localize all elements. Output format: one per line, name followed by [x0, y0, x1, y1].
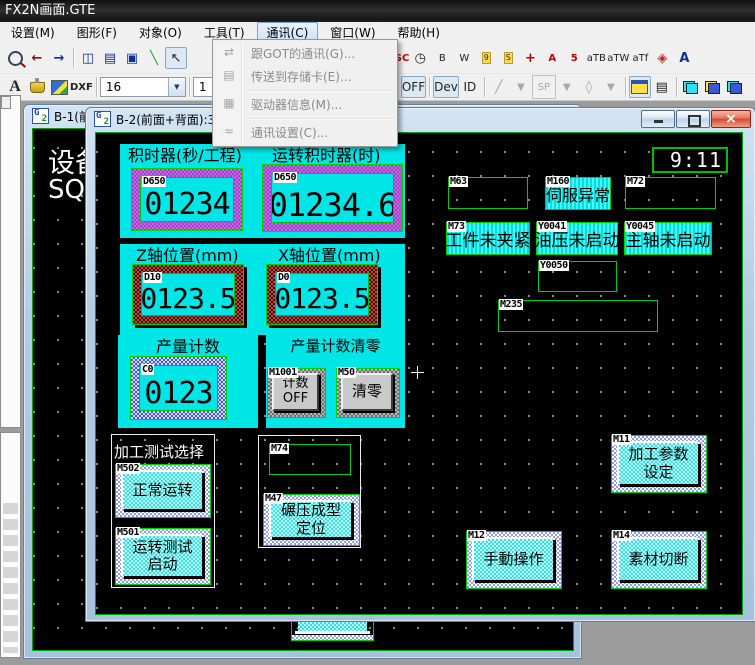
clock-display-icon[interactable]: ◷ [409, 47, 431, 69]
screen-copy-icon[interactable]: ◫ [77, 47, 99, 69]
chevron-down-icon[interactable]: ▼ [600, 76, 622, 98]
alarm-user-icon[interactable]: 9 [482, 52, 491, 64]
lamp-m63[interactable]: M63 [448, 177, 528, 209]
dxf-icon[interactable]: DXF [70, 76, 93, 98]
button-bevel [295, 631, 370, 634]
lamp-servo-alarm[interactable]: M160 伺服异常 [545, 177, 611, 210]
timer-title: 积时器(秒/工程) [128, 147, 242, 165]
screen-overlay-icon[interactable]: ▣ [121, 47, 143, 69]
button-frame [292, 635, 373, 640]
device-label: D650 [142, 176, 166, 187]
image-icon[interactable] [48, 76, 70, 98]
clock-display[interactable]: 9:11 [652, 147, 728, 173]
device-label: M235 [499, 299, 523, 310]
device-label: D10 [143, 272, 162, 283]
param-setting-button[interactable]: 加工参数 设定 M11 [611, 435, 707, 493]
font-size-combobox[interactable]: 16 ▼ [100, 77, 186, 97]
comm-setup-icon: ≈ [221, 124, 237, 138]
device-label: D650 [273, 172, 297, 183]
lamp-spindle-not-started[interactable]: Y0045 主轴未启动 [624, 222, 712, 255]
screen-thumb-icon [631, 80, 648, 94]
comment-a-icon[interactable]: A [541, 47, 563, 69]
manual-operation-button[interactable]: 手動操作 M12 [466, 531, 562, 589]
left-palette-panel[interactable] [0, 432, 21, 658]
prev-screen-icon[interactable]: ← [26, 47, 48, 69]
clock-value: 9:11 [670, 148, 722, 172]
pen-style-icon[interactable]: ╱ [488, 76, 510, 98]
menu-figure[interactable]: 图形(F) [67, 22, 127, 43]
brush-icon [30, 82, 45, 93]
z-axis-value: 0123.5 [141, 286, 235, 315]
menu-separator [245, 118, 394, 119]
b2-canvas[interactable]: 积时器(秒/工程) 运转积时器(时) 01234 D650 01234.6 [95, 132, 743, 615]
timer-panel[interactable]: 积时器(秒/工程) 运转积时器(时) 01234 D650 01234.6 [120, 144, 405, 238]
device-label: Y0045 [625, 221, 655, 232]
got-comm-icon: ⇄ [221, 45, 237, 59]
left-dock-panel[interactable] [0, 95, 21, 428]
layer-squares-icon [683, 81, 698, 94]
run-timer-display[interactable]: 01234.6 D650 [262, 164, 403, 232]
normal-run-button[interactable]: 正常运转 M502 [115, 464, 211, 518]
rolling-position-button[interactable]: 碾压成型 定位 M47 [263, 494, 360, 546]
device-label: D0 [277, 272, 290, 283]
button-label: 碾压成型 定位 [269, 500, 351, 537]
device-label: M74 [270, 443, 289, 454]
chevron-down-icon[interactable]: ▼ [510, 76, 532, 98]
window-b2[interactable]: B-2(前面+背面):3 积时器(秒/工程) 运转积时器(时) 01234 D6… [85, 107, 755, 622]
m74-group[interactable]: M74 碾压成型 定位 M47 [258, 435, 361, 548]
count-clear-panel[interactable]: 产量计数清零 计数 OFF M1001 清零 M50 [266, 335, 405, 428]
back-layer-icon[interactable] [702, 76, 724, 98]
x-axis-display[interactable]: 0123.5 D0 [266, 264, 378, 325]
device-label: M501 [116, 527, 140, 538]
menu-settings[interactable]: 设置(M) [1, 22, 65, 43]
report-w-icon[interactable]: W [453, 47, 475, 69]
device-label: M160 [546, 176, 570, 187]
toolbar-separator [484, 77, 485, 97]
next-screen-icon[interactable]: → [48, 47, 70, 69]
menu-object[interactable]: 对象(O) [129, 22, 192, 43]
device-label: M12 [467, 530, 486, 541]
front-layer-icon[interactable] [680, 76, 702, 98]
gtd-screen-icon [32, 108, 49, 124]
menu-item-comm-setup[interactable]: ≈ 通讯设置(C)... [214, 121, 396, 144]
app-title: FX2N画面.GTE [5, 3, 95, 18]
crosshair-cursor [411, 366, 424, 379]
menu-item-memory-card[interactable]: ▤ 传送到存储卡(E)... [214, 65, 396, 88]
device-label: M1001 [268, 367, 298, 378]
lamp-y0050[interactable]: Y0050 [538, 261, 617, 292]
line-tool-icon[interactable]: ╲ [143, 47, 165, 69]
comment-add-icon[interactable]: + [519, 47, 541, 69]
lamp-hydraulic-not-started[interactable]: Y0041 油压未启动 [536, 222, 618, 255]
layer-squares-icon [705, 81, 720, 94]
timer-value: 01234 [144, 191, 229, 222]
count-off-button[interactable]: 计数 OFF M1001 [267, 368, 326, 418]
menu-item-got-comm[interactable]: ⇄ 跟GOT的通讯(G)... [214, 42, 396, 65]
z-axis-display[interactable]: 0123.5 D10 [132, 264, 244, 325]
menu-item-drive-info[interactable]: ▦ 驱动器信息(M)... [214, 93, 396, 116]
paint-icon[interactable] [26, 76, 48, 98]
toolbar-separator [429, 77, 430, 97]
test-select-group[interactable]: 加工测试选择 正常运转 M502 运转测试 启动 M501 [111, 434, 215, 588]
chevron-down-icon[interactable]: ▼ [168, 78, 185, 96]
run-timer-value: 01234.6 [271, 190, 394, 222]
report-b-icon[interactable]: B [431, 47, 453, 69]
off-button[interactable]: OFF [401, 76, 426, 98]
axis-panel[interactable]: Z轴位置(mm) X轴位置(mm) 0123.5 D10 0123.5 [120, 244, 405, 335]
count-panel[interactable]: 产量计数 0123 C0 [118, 335, 258, 428]
communication-menu: ⇄ 跟GOT的通讯(G)... ▤ 传送到存储卡(E)... ▦ 驱动器信息(M… [212, 39, 398, 147]
button-label: 加工参数 设定 [617, 441, 698, 484]
menu-item-label: 传送到存储卡(E)... [251, 68, 351, 85]
window-preview-icon[interactable] [629, 76, 651, 98]
fill-style-icon[interactable]: ◊ [578, 76, 600, 98]
minimize-button[interactable] [641, 110, 675, 128]
test-select-title: 加工测试选择 [114, 441, 204, 462]
id-button[interactable]: ID [459, 76, 481, 98]
app-titlebar[interactable]: FX2N画面.GTE [0, 0, 755, 22]
device-label: M73 [447, 221, 466, 232]
button-label: 计数 OFF [272, 373, 319, 411]
z-axis-title: Z轴位置(mm) [136, 247, 239, 265]
text-w-icon[interactable]: aTW [607, 47, 629, 69]
x-axis-value: 0123.5 [275, 286, 369, 315]
library-icon[interactable]: A [673, 47, 695, 69]
menu-separator [245, 90, 394, 91]
device-label: M63 [449, 176, 468, 187]
application-window: FX2N画面.GTE 设置(M) 图形(F) 对象(O) 工具(T) 通讯(C)… [0, 0, 755, 665]
text-b-icon[interactable]: aTB [585, 47, 607, 69]
maximize-button[interactable] [676, 110, 710, 128]
comment-5-icon[interactable]: 5 [563, 47, 585, 69]
material-cut-button[interactable]: 素材切断 M14 [611, 531, 707, 589]
count-clear-button[interactable]: 清零 M50 [336, 368, 400, 418]
palette-items [3, 503, 18, 653]
menu-item-label: 驱动器信息(M)... [251, 96, 342, 113]
toolbar-separator [96, 77, 97, 97]
preview-icon[interactable] [4, 47, 26, 69]
button-label: 正常运转 [121, 470, 202, 509]
font-size-value: 16 [106, 80, 121, 94]
alarm-system-icon[interactable]: S [504, 52, 513, 64]
button-face [298, 622, 367, 631]
x-axis-title: X轴位置(mm) [278, 247, 381, 265]
button-label: 运转测试 启动 [121, 534, 202, 576]
count-display[interactable]: 0123 C0 [130, 356, 227, 420]
menu-item-label: 跟GOT的通讯(G)... [251, 45, 355, 62]
device-label: M11 [612, 434, 631, 445]
toolbar-separator [625, 77, 626, 97]
device-label: Y0050 [539, 260, 569, 271]
device-label: M502 [116, 463, 140, 474]
drive-info-icon: ▦ [221, 96, 237, 110]
partial-touch-button[interactable] [291, 621, 374, 641]
layer-squares-icon [727, 81, 742, 94]
toolbar-separator [189, 77, 190, 97]
window-b2-title: B-2(前面+背面):3 [116, 111, 215, 128]
test-run-button[interactable]: 运转测试 启动 M501 [115, 528, 211, 585]
run-timer-title: 运转积时器(时) [272, 147, 381, 165]
dock-collapse-tab[interactable] [1, 96, 11, 109]
memory-card-icon: ▤ [221, 68, 237, 82]
device-label: M50 [337, 367, 356, 378]
fan-icon[interactable]: ◈ [651, 47, 673, 69]
device-label: M47 [264, 493, 283, 504]
chevron-down-icon[interactable]: ▼ [556, 76, 578, 98]
window-controls [641, 110, 751, 128]
count-title: 产量计数 [118, 338, 258, 356]
lamp-m235[interactable]: M235 [498, 300, 658, 332]
data-list-icon[interactable]: ▤ [651, 76, 673, 98]
button-label: 素材切断 [617, 537, 698, 580]
device-label: M72 [626, 176, 645, 187]
toolbar-separator [676, 77, 677, 97]
magnifier-icon [8, 51, 23, 66]
state-value: 1 [199, 80, 207, 94]
timer-display[interactable]: 01234 D650 [131, 168, 243, 231]
picture-icon [51, 80, 68, 95]
toolbar-separator [73, 48, 74, 68]
device-label: Y0041 [537, 221, 567, 232]
lamp-workpiece-unclamped[interactable]: M73 工件未夹紧 [446, 222, 530, 255]
sp-style-icon[interactable]: SP [532, 75, 556, 99]
device-label: M14 [612, 530, 631, 541]
device-button[interactable]: Dev [433, 76, 459, 98]
both-layer-icon[interactable] [724, 76, 746, 98]
button-label: 清零 [341, 373, 393, 411]
lamp-m74[interactable]: M74 [269, 444, 351, 475]
menu-item-label: 通讯设置(C)... [251, 124, 328, 141]
text-f-icon[interactable]: aTf [629, 47, 651, 69]
button-label: 手動操作 [472, 537, 553, 580]
close-button[interactable] [711, 110, 751, 128]
lamp-m72[interactable]: M72 [625, 177, 716, 209]
screen-list-icon[interactable]: ▤ [99, 47, 121, 69]
gtd-screen-icon [94, 111, 111, 127]
select-tool-icon[interactable]: ↖ [165, 47, 187, 69]
count-clear-title: 产量计数清零 [266, 338, 405, 355]
count-value: 0123 [144, 380, 212, 411]
device-label: C0 [141, 364, 154, 375]
